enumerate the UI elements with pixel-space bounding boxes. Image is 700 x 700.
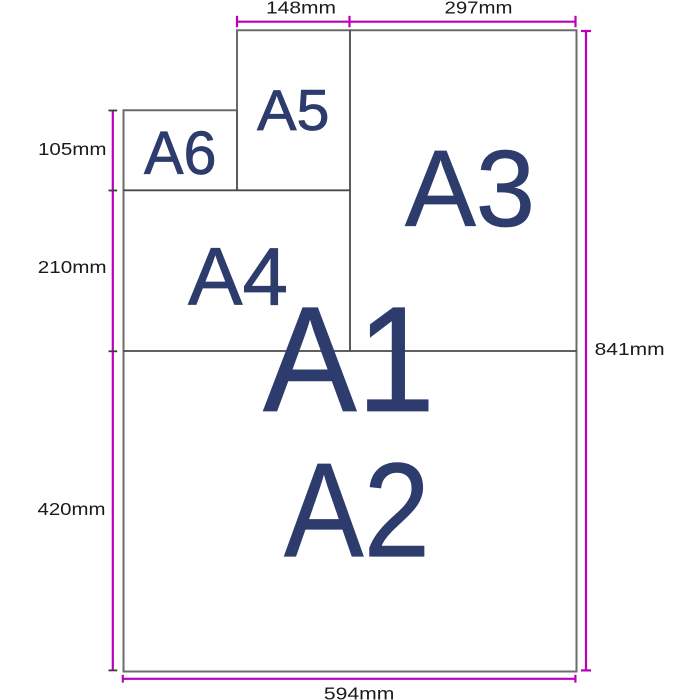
svg-text:A3: A3: [405, 128, 535, 249]
svg-text:148mm: 148mm: [266, 0, 336, 18]
svg-text:297mm: 297mm: [445, 0, 513, 18]
svg-text:420mm: 420mm: [38, 499, 106, 519]
svg-text:A2: A2: [284, 436, 430, 585]
svg-text:105mm: 105mm: [38, 139, 107, 159]
svg-text:210mm: 210mm: [38, 257, 107, 277]
svg-text:A5: A5: [257, 79, 330, 143]
svg-text:594mm: 594mm: [324, 684, 395, 700]
svg-text:841mm: 841mm: [595, 339, 665, 359]
svg-text:A6: A6: [144, 119, 217, 188]
svg-text:A1: A1: [263, 275, 435, 443]
